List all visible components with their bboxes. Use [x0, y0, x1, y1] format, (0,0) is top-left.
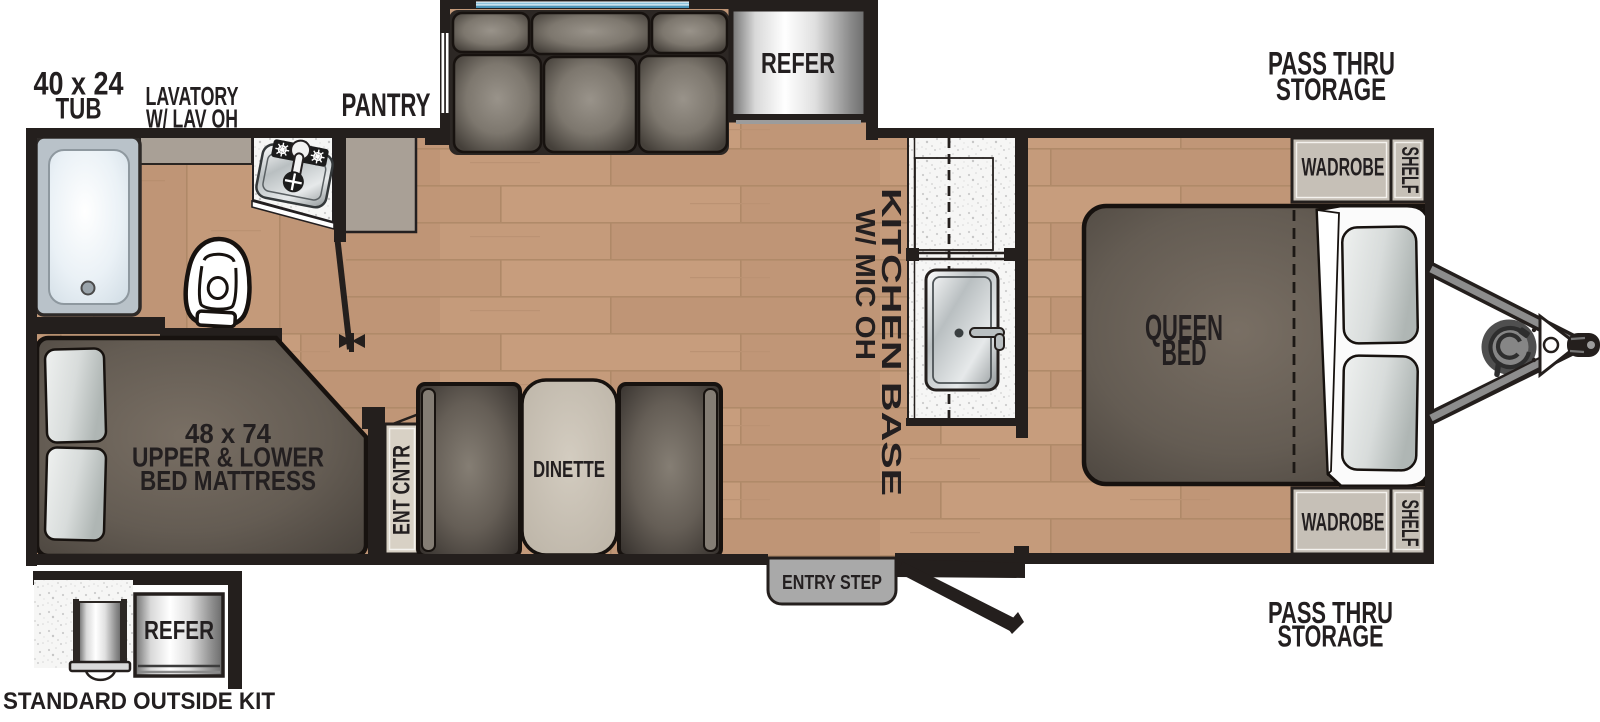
- svg-text:SHELF: SHELF: [1396, 147, 1423, 194]
- svg-text:WADROBE: WADROBE: [1302, 154, 1385, 182]
- svg-text:STANDARD OUTSIDE KIT: STANDARD OUTSIDE KIT: [3, 688, 275, 715]
- svg-text:PANTRY: PANTRY: [342, 87, 431, 123]
- svg-text:ENTRY STEP: ENTRY STEP: [782, 572, 882, 594]
- svg-text:REFER: REFER: [761, 48, 835, 80]
- svg-text:ENT CNTR: ENT CNTR: [389, 445, 416, 535]
- svg-text:STORAGE: STORAGE: [1276, 71, 1386, 107]
- svg-text:BED: BED: [1162, 332, 1207, 373]
- svg-text:REFER: REFER: [144, 615, 214, 645]
- svg-text:W/ LAV OH: W/ LAV OH: [146, 106, 238, 134]
- svg-text:DINETTE: DINETTE: [533, 456, 605, 482]
- svg-text:TUB: TUB: [56, 93, 102, 126]
- svg-text:SHELF: SHELF: [1396, 500, 1423, 547]
- svg-text:W/ MIC OH: W/ MIC OH: [850, 209, 881, 360]
- svg-text:STORAGE: STORAGE: [1278, 619, 1384, 654]
- svg-text:WADROBE: WADROBE: [1302, 509, 1385, 537]
- svg-text:BED MATTRESS: BED MATTRESS: [140, 465, 316, 496]
